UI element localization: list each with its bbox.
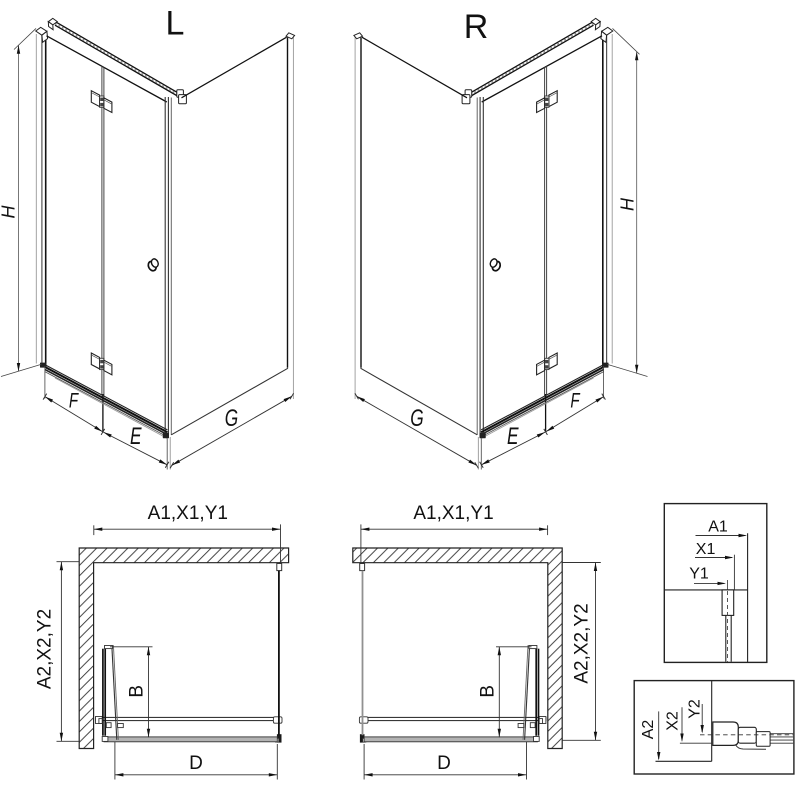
- svg-text:H: H: [0, 205, 19, 219]
- svg-text:A1,X1,Y1: A1,X1,Y1: [148, 503, 228, 524]
- svg-text:A2: A2: [640, 720, 657, 740]
- svg-text:G: G: [410, 405, 423, 431]
- svg-text:A2,X2,Y2: A2,X2,Y2: [35, 609, 56, 689]
- svg-text:B: B: [478, 685, 499, 698]
- svg-text:F: F: [69, 388, 80, 412]
- svg-text:X1: X1: [696, 541, 716, 558]
- svg-text:B: B: [127, 685, 148, 698]
- svg-text:E: E: [130, 423, 142, 449]
- svg-text:A2,X2,Y2: A2,X2,Y2: [572, 603, 593, 683]
- svg-text:G: G: [225, 405, 238, 431]
- svg-text:X2: X2: [664, 711, 681, 731]
- svg-text:A1,X1,Y1: A1,X1,Y1: [413, 503, 493, 524]
- svg-text:Y1: Y1: [689, 566, 709, 583]
- svg-text:F: F: [570, 388, 581, 412]
- svg-text:R: R: [464, 8, 489, 46]
- svg-text:D: D: [189, 753, 203, 774]
- svg-text:E: E: [507, 423, 519, 449]
- svg-text:H: H: [618, 197, 638, 211]
- svg-text:Y2: Y2: [687, 699, 704, 719]
- svg-text:D: D: [437, 753, 451, 774]
- svg-text:L: L: [166, 5, 185, 43]
- svg-text:A1: A1: [708, 519, 728, 536]
